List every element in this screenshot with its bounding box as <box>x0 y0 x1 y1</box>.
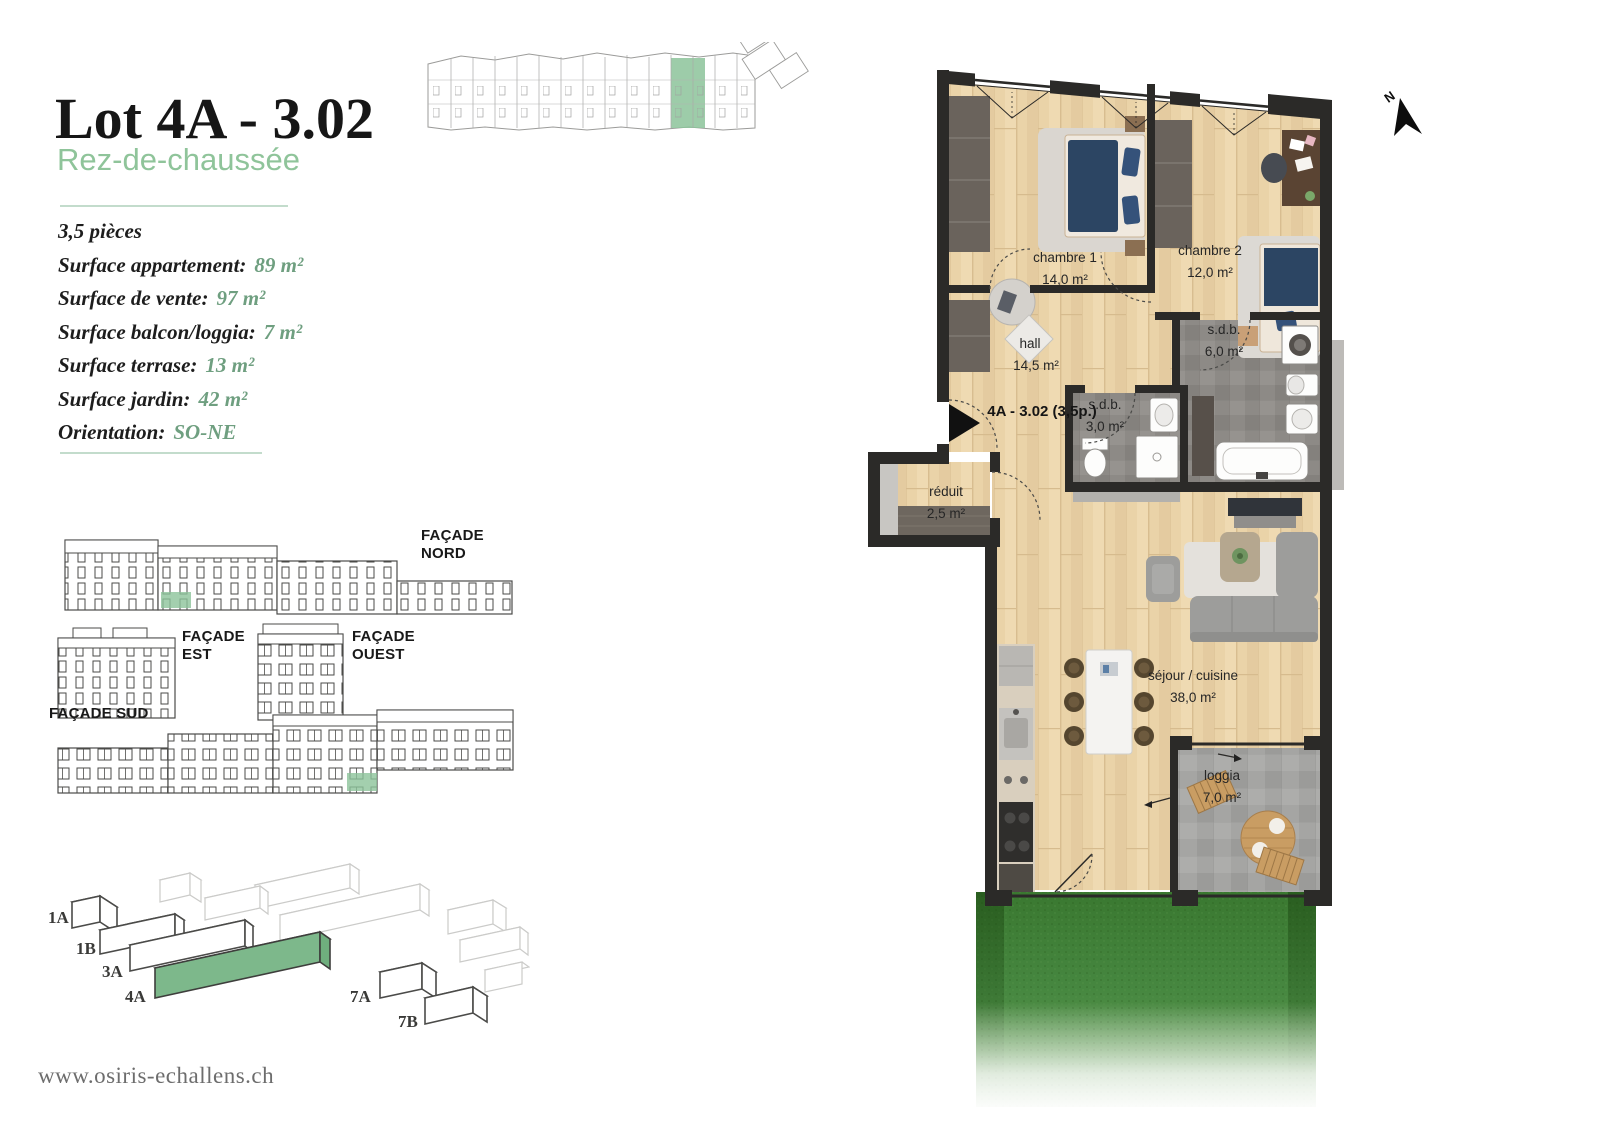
site-label-4a: 4A <box>125 987 147 1006</box>
detail-row: Orientation:SO-NE <box>58 416 303 450</box>
room-name: séjour / cuisine <box>1148 668 1238 683</box>
key-plan-highlighted-unit <box>671 58 705 128</box>
facade-sud-highlight <box>347 773 377 791</box>
room-area: 6,0 m² <box>1205 344 1244 359</box>
site-label-7b: 7B <box>398 1012 418 1031</box>
room-area: 14,0 m² <box>1042 272 1088 287</box>
bathroom-cabinet <box>1192 396 1214 476</box>
bed-duvet <box>1264 248 1318 306</box>
site-label-1a: 1A <box>48 908 70 927</box>
room-name: hall <box>1019 336 1040 351</box>
details-list: 3,5 pièces Surface appartement:89 m² Sur… <box>58 215 303 450</box>
detail-row: Surface balcon/loggia:7 m² <box>58 316 303 350</box>
site-building-7a <box>380 963 436 998</box>
toilet-tank <box>1082 438 1108 450</box>
site-label-3a: 3A <box>102 962 124 981</box>
room-name: chambre 1 <box>1033 250 1097 265</box>
building-key-plan <box>423 42 823 142</box>
room-area: 7,0 m² <box>1203 790 1242 805</box>
room-name: réduit <box>929 484 963 499</box>
kitchen-sink <box>1004 718 1028 748</box>
shower <box>1136 436 1178 478</box>
site-label-7a: 7A <box>350 987 372 1006</box>
detail-row: Surface appartement:89 m² <box>58 249 303 283</box>
detail-value: 7 m² <box>264 320 302 344</box>
room-area: 14,5 m² <box>1013 358 1059 373</box>
cooktop <box>999 802 1033 862</box>
facade-ouest-label: FAÇADE OUEST <box>352 628 438 664</box>
room-name: s.d.b. <box>1207 322 1240 337</box>
detail-label: Surface balcon/loggia: <box>58 320 256 344</box>
detail-value: 42 m² <box>198 387 247 411</box>
facade-est-label: FAÇADE EST <box>182 628 256 664</box>
north-arrow-icon: N <box>1381 88 1422 136</box>
room-name: chambre 2 <box>1178 243 1242 258</box>
rooms-count: 3,5 pièces <box>58 215 303 249</box>
garden-grass <box>968 892 1324 1114</box>
site-label-1b: 1B <box>76 939 96 958</box>
floor-level-subtitle: Rez-de-chaussée <box>57 142 300 178</box>
north-letter: N <box>1381 88 1397 106</box>
detail-value: 97 m² <box>216 286 265 310</box>
detail-label: Surface jardin: <box>58 387 190 411</box>
detail-label: Surface appartement: <box>58 253 246 277</box>
room-name: loggia <box>1204 768 1241 783</box>
kitchen-counter <box>997 644 1035 892</box>
room-area: 3,0 m² <box>1086 419 1125 434</box>
detail-value: 89 m² <box>254 253 303 277</box>
threshold <box>1073 492 1180 502</box>
unit-label: 4A - 3.02 (3,5p.) <box>987 403 1096 420</box>
room-area: 2,5 m² <box>927 506 966 521</box>
website-url: www.osiris-echallens.ch <box>38 1063 274 1089</box>
kitchen-faucet <box>1013 709 1019 715</box>
detail-value: SO-NE <box>173 420 236 444</box>
detail-row: Surface de vente:97 m² <box>58 282 303 316</box>
plate <box>1269 818 1285 834</box>
nightstand <box>1238 326 1258 346</box>
site-plan-3d: 1A 1B 3A 4A 7A 7B <box>30 790 530 1070</box>
facade-nord-drawing <box>57 532 517 627</box>
tub-faucet <box>1256 472 1268 479</box>
exterior-ledge <box>1332 340 1344 490</box>
pillow <box>1122 195 1141 225</box>
separator <box>60 452 262 454</box>
detail-value: 13 m² <box>205 353 254 377</box>
detail-row: Surface jardin:42 m² <box>58 383 303 417</box>
tv-sideboard <box>1228 498 1302 516</box>
detail-label: Orientation: <box>58 420 165 444</box>
bed-duvet <box>1068 140 1118 232</box>
detail-row: Surface terrase:13 m² <box>58 349 303 383</box>
separator <box>60 205 288 207</box>
room-area: 38,0 m² <box>1170 690 1216 705</box>
desk-chair <box>1261 153 1287 183</box>
hall-furniture <box>949 300 990 372</box>
facade-sud-drawing <box>53 688 518 803</box>
wardrobe <box>949 96 990 252</box>
detail-label: Surface terrase: <box>58 353 197 377</box>
sofa-chaise <box>1276 532 1318 598</box>
detail-label: Surface de vente: <box>58 286 208 310</box>
floor-plan: chambre 1 14,0 m² chambre 2 12,0 m² hall… <box>840 40 1460 1131</box>
toilet <box>1084 449 1106 477</box>
brochure-page: { "header": { "title": "Lot 4A - 3.02", … <box>0 0 1600 1131</box>
nightstand <box>1125 116 1145 132</box>
nightstand <box>1125 240 1145 256</box>
room-area: 12,0 m² <box>1187 265 1233 280</box>
facade-nord-highlight <box>161 592 191 608</box>
wardrobe <box>1155 120 1192 248</box>
